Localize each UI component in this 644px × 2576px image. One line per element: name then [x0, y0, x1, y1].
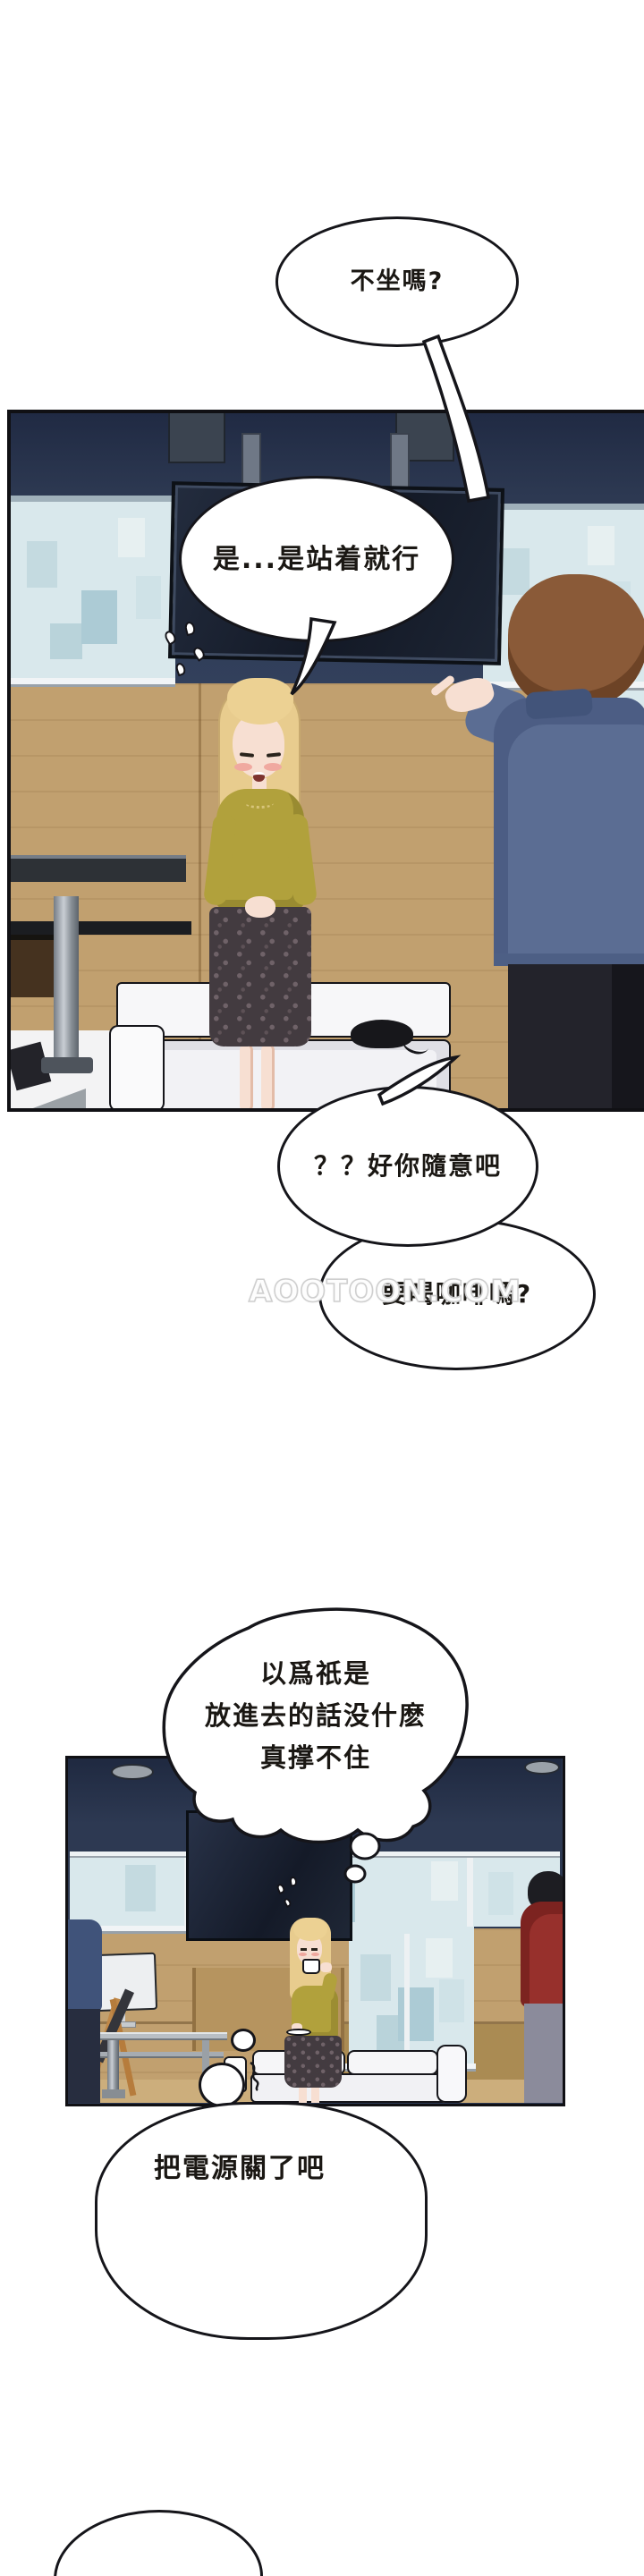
speech-bubble-3: ？？好你隨意吧: [277, 1086, 538, 1247]
desk-pole: [107, 2040, 119, 2092]
thought-text-6: 把電源關了吧: [106, 2148, 374, 2189]
coffee-mug: [302, 1959, 320, 1974]
man-pants: [508, 964, 644, 1112]
couch-armrest: [109, 1025, 165, 1112]
woman2-eye: [311, 1948, 318, 1951]
woman-hands: [245, 896, 275, 918]
speech-text-2: 是...是站着就行: [213, 539, 420, 580]
speech-bubble-tail: [376, 1054, 465, 1107]
woman-leg-left: [240, 1045, 253, 1111]
woman2-eye: [301, 1948, 307, 1951]
thought-text-6-line: 把電源關了吧: [154, 2153, 326, 2184]
thought-line-1: 以爲祇是: [186, 1653, 445, 1695]
foreground-person-pants: [68, 2009, 100, 2103]
window-sill-left: [11, 678, 175, 687]
thought-text-block: 以爲祇是 放進去的話没什麽 真撑不住: [186, 1653, 445, 1779]
couch-back-right: [347, 2050, 438, 2075]
site-watermark: AOOTOON.COM: [249, 1274, 472, 1317]
thought-bubble-6: [95, 2102, 428, 2340]
kettle-cord: [247, 2061, 263, 2091]
ceiling-light-left: [111, 1764, 154, 1780]
speech-bubble-tail: [417, 333, 503, 508]
window-frame: [11, 496, 175, 502]
saucer-plate: [286, 2029, 311, 2036]
man-jacket-collar: [525, 688, 593, 719]
table-pole-foot: [41, 1057, 93, 1073]
thought-line-3: 真撑不住: [186, 1737, 445, 1779]
woman-skirt: [209, 907, 311, 1046]
woman2-blush: [299, 1953, 307, 1956]
ceiling-box-left: [168, 413, 225, 463]
thought-trail-circle: [345, 1866, 365, 1882]
woman2-bangs: [293, 1918, 327, 1941]
thought-trail-circle: [231, 2029, 256, 2052]
woman2-leg: [299, 2088, 307, 2103]
woman-necklace: [245, 798, 274, 809]
desk-foot: [102, 2089, 125, 2098]
couch-armrest: [436, 2045, 467, 2103]
watermark-text: AOOTOON.COM: [249, 1274, 521, 1309]
speech-bubble-tail: [288, 617, 351, 699]
red-person-pants: [524, 2004, 565, 2103]
tv-bracket-right: [390, 433, 410, 492]
ceiling-light-right: [524, 1760, 560, 1775]
woman2-blush: [311, 1953, 319, 1956]
speech-bubble-1: 不坐嗎?: [275, 216, 519, 347]
webtoon-page: 不坐嗎?: [0, 0, 644, 2576]
woman-mouth: [253, 772, 265, 782]
thought-line-2: 放進去的話没什麽: [186, 1695, 445, 1737]
speech-text-1: 不坐嗎?: [351, 264, 445, 301]
desk-stripe: [11, 921, 191, 935]
woman-blush-right: [264, 763, 282, 771]
woman2-skirt: [284, 2036, 342, 2088]
man-jacket: [494, 698, 644, 966]
woman2-leg: [311, 2088, 319, 2103]
table-pole: [54, 896, 79, 1061]
woman-blush-left: [234, 763, 252, 771]
partial-bubble-bottom: [54, 2510, 263, 2576]
window-frame: [483, 504, 644, 510]
red-person-hoodie: [521, 1902, 565, 2007]
thought-trail-circle: [351, 1834, 379, 1859]
desk-top-bar: [91, 2032, 227, 2040]
woman-leg-right: [261, 1045, 275, 1111]
foreground-person-shirt: [68, 1919, 102, 2012]
speech-text-3: ？？好你隨意吧: [314, 1148, 502, 1185]
window-left: [11, 502, 175, 679]
desk-top: [11, 855, 186, 882]
couch-seat: [250, 2073, 447, 2103]
thought-bubble-bump: [199, 2063, 245, 2107]
woman2-hand-up: [320, 1962, 332, 1972]
window-mullion: [404, 1934, 410, 2064]
woman-bangs: [227, 678, 293, 724]
